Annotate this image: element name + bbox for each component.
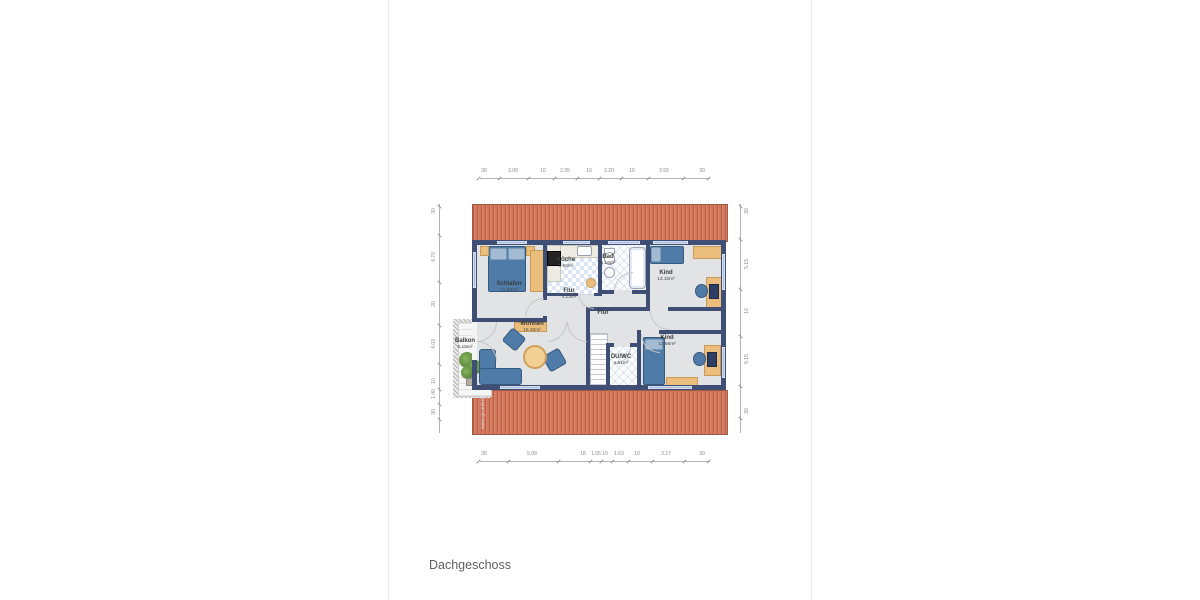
dim-label: 5.08 (521, 451, 543, 457)
nightstand (480, 246, 489, 256)
dim-label: 30 (691, 451, 713, 457)
room-name: Balkon (455, 338, 475, 344)
dimension-chain-top: 303.00102.35102.20103.5530 (480, 167, 710, 181)
dim-label: 4.70 (431, 246, 437, 268)
dim-label: 10 (621, 168, 643, 174)
dim-label: 3.55 (653, 168, 675, 174)
window (648, 386, 692, 389)
dim-label: 30 (431, 200, 437, 222)
window (722, 347, 725, 378)
dim-label: 30 (691, 168, 713, 174)
dim-tick (437, 323, 441, 327)
dim-label: 5.15 (744, 253, 750, 275)
room-name: Kind (659, 270, 672, 276)
dim-label: 10 (532, 168, 554, 174)
room-area: 11.08m² (479, 288, 539, 294)
desk-chair (693, 352, 706, 366)
dim-tick (738, 384, 742, 388)
dimension-chain-bottom: 305.08181.05101.63103.2730 (480, 450, 710, 464)
dim-label: 5.15 (744, 348, 750, 370)
room-name: Kind (660, 335, 673, 341)
window (653, 241, 688, 244)
room-area: 5.69m² (546, 264, 586, 270)
desk-monitor (709, 284, 719, 299)
watermark-text: www.grundriss (480, 395, 485, 429)
window (608, 241, 640, 244)
dim-label: 3.00 (502, 168, 524, 174)
bed-pillow (490, 248, 507, 260)
room-name: Flur (563, 288, 574, 294)
room-label-flur-main: Flur (583, 310, 623, 317)
dim-tick (437, 204, 441, 208)
dim-label: 20 (431, 293, 437, 315)
dim-tick (738, 334, 742, 338)
image-right-edge (811, 0, 812, 600)
room-label-duwc: DU/WC 4.51m² (601, 354, 641, 366)
dimension-chain-left: 304.70204.03101.4030 (426, 204, 442, 433)
room-label-kind-bottom: Kind 12.66m² (647, 335, 687, 347)
dim-label: 30 (744, 200, 750, 222)
wall-segment (598, 245, 602, 293)
wall-segment (659, 330, 721, 334)
floor-plan-page: 303.00102.35102.20103.5530 305.08181.051… (0, 0, 1200, 600)
wardrobe (693, 246, 723, 259)
dim-tick (437, 233, 441, 237)
desk-chair (695, 284, 708, 298)
roof-band-bottom (472, 390, 728, 435)
wall-segment (602, 290, 614, 294)
dimension-chain-right: 305.15105.1530 (739, 204, 755, 433)
dim-tick (437, 417, 441, 421)
room-name: Wohnen (520, 321, 544, 327)
dim-tick (738, 204, 742, 208)
room-area: 12.66m² (647, 342, 687, 348)
room-label-kind-top: Kind 13.10m² (646, 270, 686, 282)
image-left-edge (388, 0, 389, 600)
dim-label: 10 (578, 168, 600, 174)
bath-sink (604, 267, 615, 278)
desk-monitor (707, 352, 717, 367)
room-area: 19.32m² (502, 328, 562, 334)
dim-label: 30 (473, 168, 495, 174)
room-area: 4.13m² (549, 295, 589, 301)
room-label-flur-top: Flur 4.13m² (549, 288, 589, 300)
room-label-wohnen: Wohnen 19.32m² (502, 321, 562, 333)
sofa (479, 368, 522, 385)
wall-segment (668, 307, 721, 311)
dim-label: 30 (473, 451, 495, 457)
room-label-schlafen: Schlafen 11.08m² (479, 281, 539, 293)
page-title: Dachgeschoss (429, 558, 511, 572)
kitchen-stool (586, 278, 596, 288)
window (473, 252, 476, 288)
room-name: DU/WC (611, 354, 631, 360)
wall-segment (594, 293, 602, 296)
room-area: 5.15m² (447, 345, 483, 351)
wall-segment (632, 290, 650, 294)
dim-label: 30 (431, 401, 437, 423)
dimension-line (480, 461, 710, 462)
wall-segment (472, 360, 477, 390)
dimension-line (439, 204, 440, 433)
dimension-line (480, 178, 710, 179)
dim-label: 30 (744, 400, 750, 422)
bed-pillow (508, 248, 525, 260)
dim-tick (437, 402, 441, 406)
dim-label: 2.35 (554, 168, 576, 174)
dim-label: 10 (626, 451, 648, 457)
room-name: Bad (602, 254, 613, 260)
room-name: Küche (557, 257, 575, 263)
room-name: Schlafen (496, 281, 521, 287)
wall-segment (606, 343, 614, 347)
room-name: Flur (597, 310, 608, 316)
dim-label: 4.03 (431, 333, 437, 355)
room-label-kueche: Küche 5.69m² (546, 257, 586, 269)
window (500, 386, 540, 389)
coffee-table (523, 345, 547, 369)
room-label-balkon: Balkon 5.15m² (447, 338, 483, 350)
dim-label: 3.27 (655, 451, 677, 457)
dim-label: 2.20 (598, 168, 620, 174)
window (722, 254, 725, 290)
room-area: 5.18m² (588, 261, 628, 267)
bed-pillow (651, 247, 661, 262)
room-area: 13.10m² (646, 277, 686, 283)
wall-segment (586, 307, 590, 385)
window (497, 241, 527, 244)
window (563, 241, 590, 244)
wall-segment (543, 245, 547, 300)
dim-label: 10 (744, 300, 750, 322)
roof-band-top (472, 204, 728, 242)
dim-tick (738, 416, 742, 420)
room-area: 4.51m² (601, 361, 641, 367)
room-label-bad: Bad 5.18m² (588, 254, 628, 266)
